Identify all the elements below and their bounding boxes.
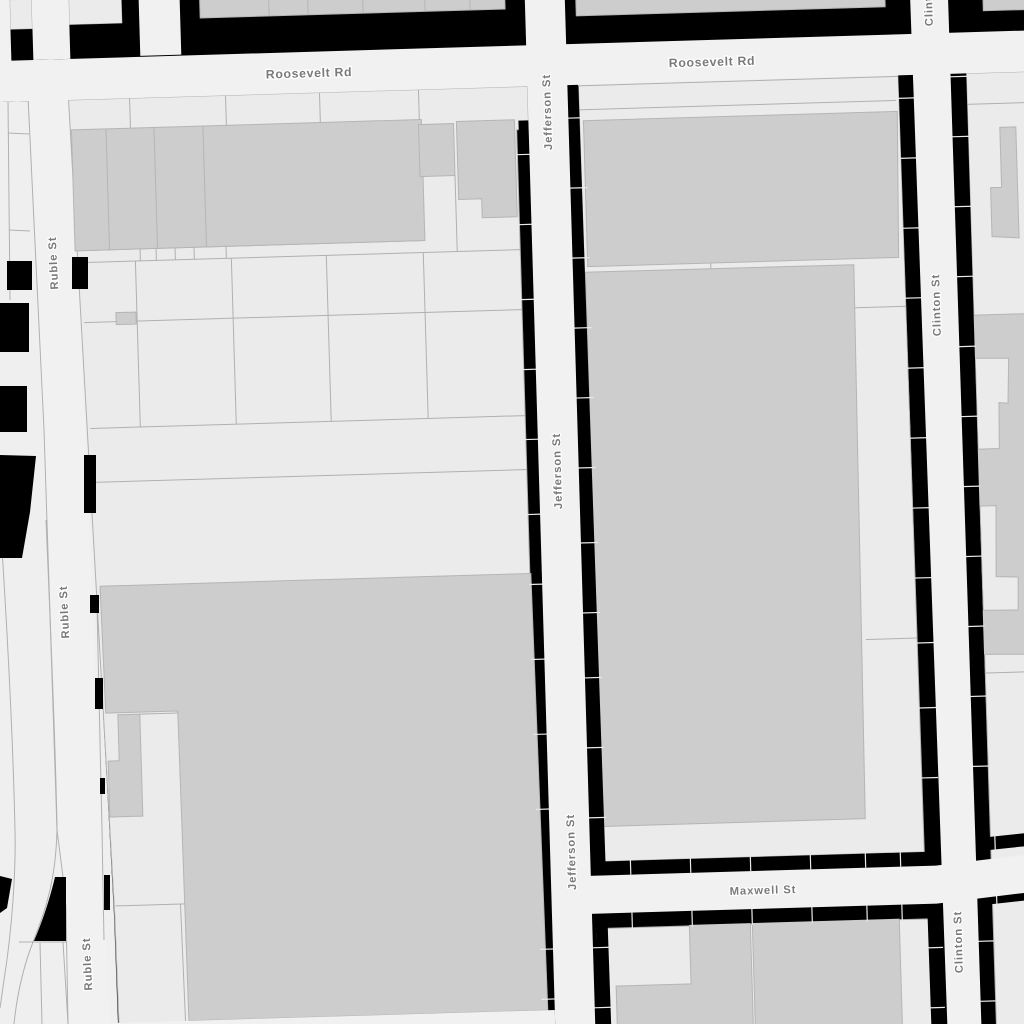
- svg-text:Clinton St: Clinton St: [922, 0, 936, 26]
- svg-text:Jefferson St: Jefferson St: [565, 814, 579, 890]
- svg-text:Jefferson St: Jefferson St: [551, 433, 565, 509]
- svg-text:Roosevelt Rd: Roosevelt Rd: [669, 54, 756, 71]
- svg-text:Ruble St: Ruble St: [47, 236, 61, 290]
- svg-text:Clinton St: Clinton St: [952, 911, 966, 974]
- svg-text:Maxwell St: Maxwell St: [729, 884, 796, 898]
- svg-text:Ruble St: Ruble St: [81, 937, 95, 991]
- svg-text:Roosevelt Rd: Roosevelt Rd: [266, 65, 353, 82]
- svg-text:Clinton St: Clinton St: [930, 274, 944, 337]
- svg-text:Ruble St: Ruble St: [58, 585, 72, 639]
- svg-text:Jefferson St: Jefferson St: [541, 74, 555, 150]
